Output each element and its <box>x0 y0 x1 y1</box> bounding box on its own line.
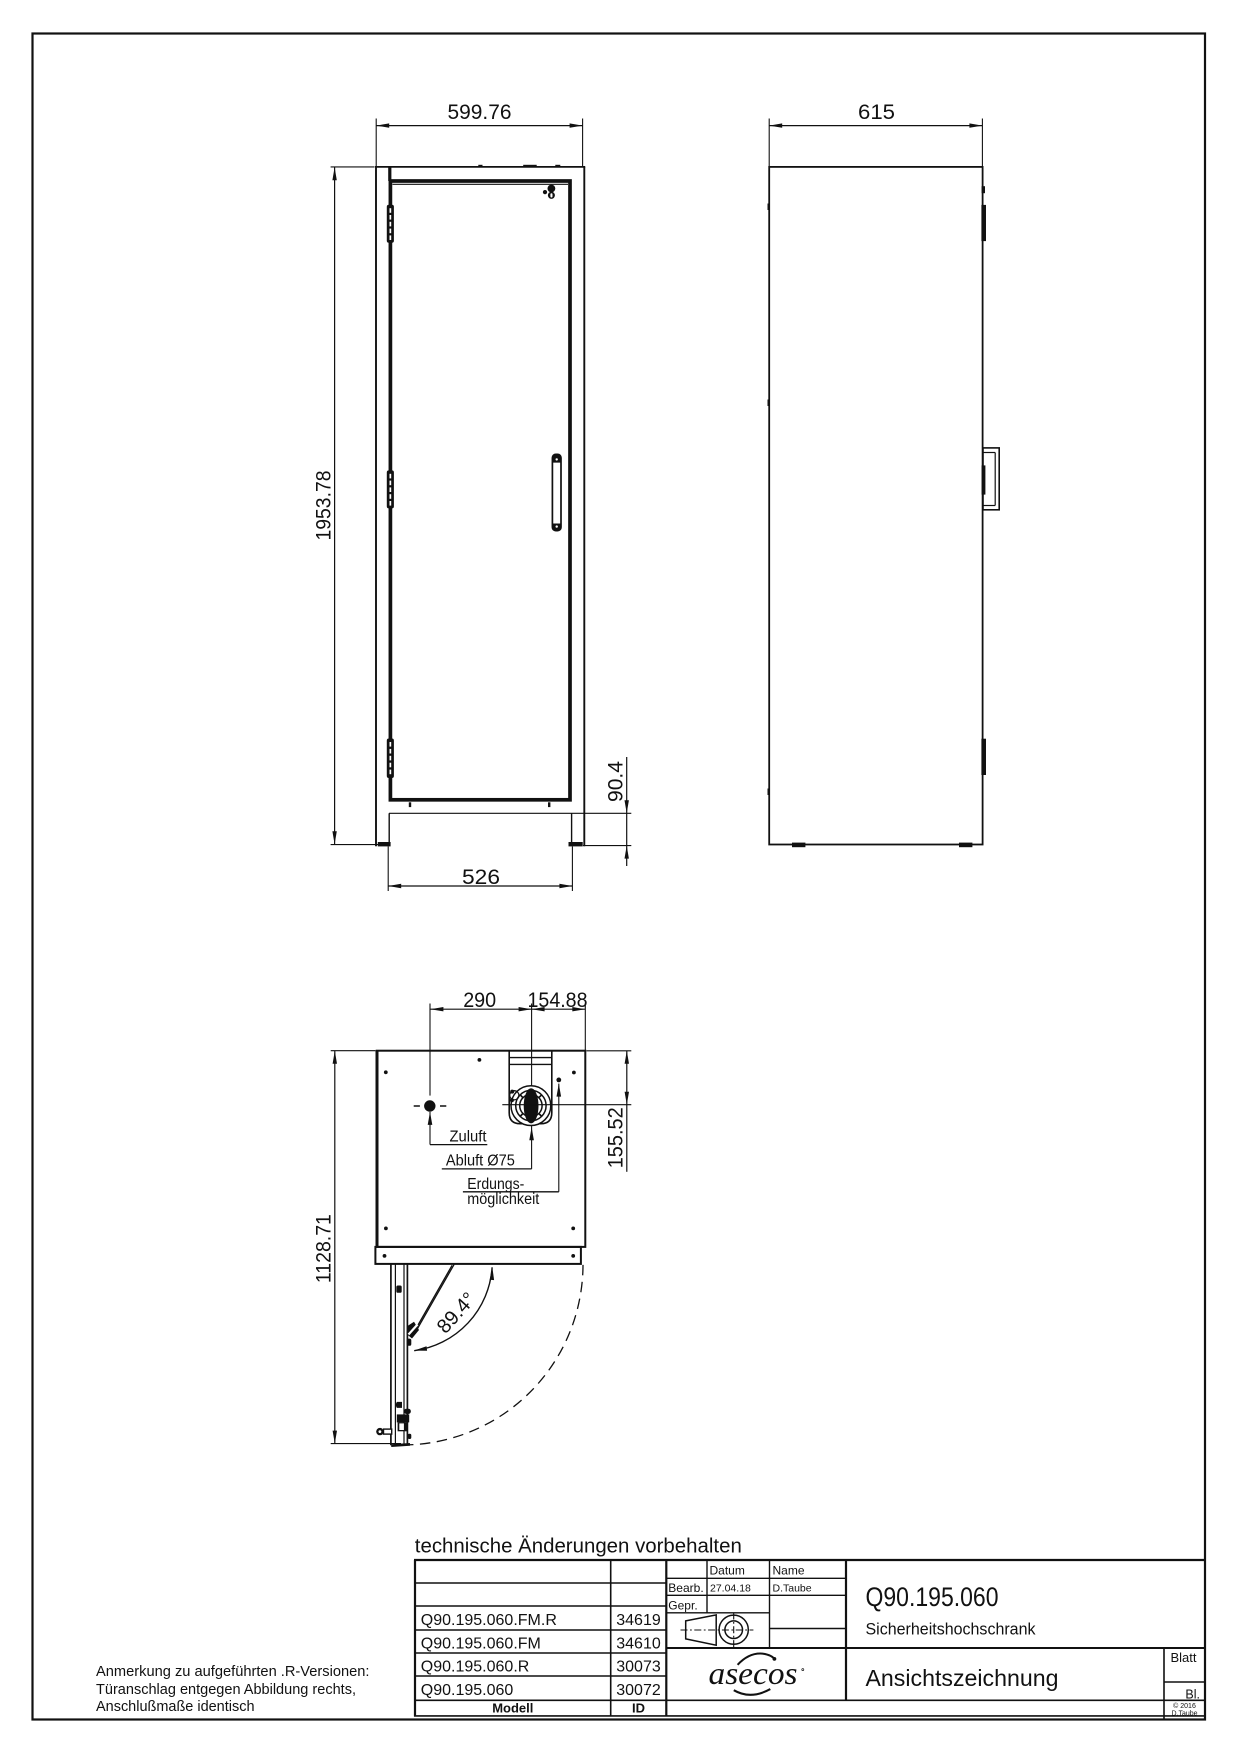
svg-text:Datum: Datum <box>710 1564 745 1578</box>
svg-text:Zuluft: Zuluft <box>450 1129 488 1146</box>
svg-text:526: 526 <box>462 866 500 889</box>
svg-text:Abluft Ø75: Abluft Ø75 <box>446 1153 515 1170</box>
svg-text:599.76: 599.76 <box>448 101 512 124</box>
svg-text:Q90.195.060.FM.R: Q90.195.060.FM.R <box>421 1612 557 1629</box>
svg-text:34610: 34610 <box>616 1636 661 1653</box>
svg-text:Modell: Modell <box>492 1700 533 1715</box>
svg-text:90.4: 90.4 <box>604 761 627 802</box>
svg-text:30073: 30073 <box>616 1659 661 1676</box>
svg-text:D.Taube: D.Taube <box>1171 1710 1197 1717</box>
svg-text:290: 290 <box>463 989 496 1012</box>
svg-text:Bearb.: Bearb. <box>668 1581 703 1595</box>
svg-text:615: 615 <box>858 101 895 124</box>
svg-text:Bl.: Bl. <box>1185 1688 1200 1702</box>
svg-text:Gepr.: Gepr. <box>668 1598 697 1612</box>
svg-text:155.52: 155.52 <box>605 1107 628 1168</box>
svg-text:1128.71: 1128.71 <box>312 1214 335 1283</box>
svg-text:Blatt: Blatt <box>1170 1650 1196 1665</box>
svg-text:1953.78: 1953.78 <box>312 471 335 541</box>
svg-text:Q90.195.060.R: Q90.195.060.R <box>421 1659 530 1676</box>
svg-text:technische Änderungen vorbehal: technische Änderungen vorbehalten <box>415 1536 742 1558</box>
svg-text:Sicherheitshochschrank: Sicherheitshochschrank <box>866 1619 1036 1638</box>
svg-text:Anmerkung zu aufgeführten .R-V: Anmerkung zu aufgeführten .R-Versionen: <box>96 1664 370 1680</box>
svg-text:Name: Name <box>773 1564 805 1578</box>
svg-text:möglichkeit: möglichkeit <box>467 1191 540 1208</box>
svg-text:© 2016: © 2016 <box>1173 1702 1196 1710</box>
svg-text:ID: ID <box>632 1700 645 1715</box>
svg-text:Q90.195.060.FM: Q90.195.060.FM <box>421 1636 541 1653</box>
svg-text:Q90.195.060: Q90.195.060 <box>421 1682 514 1699</box>
svg-text:30072: 30072 <box>616 1682 661 1699</box>
svg-text:Türanschlag entgegen Abbildung: Türanschlag entgegen Abbildung rechts, <box>96 1682 356 1698</box>
svg-text:D.Taube: D.Taube <box>773 1582 812 1594</box>
svg-text:34619: 34619 <box>616 1612 661 1629</box>
svg-text:Ansichtszeichnung: Ansichtszeichnung <box>866 1665 1059 1691</box>
svg-text:asecos: asecos <box>709 1655 798 1691</box>
svg-text:Q90.195.060: Q90.195.060 <box>866 1582 999 1612</box>
svg-text:Anschlußmaße identisch: Anschlußmaße identisch <box>96 1699 255 1715</box>
svg-text:27.04.18: 27.04.18 <box>710 1582 751 1594</box>
